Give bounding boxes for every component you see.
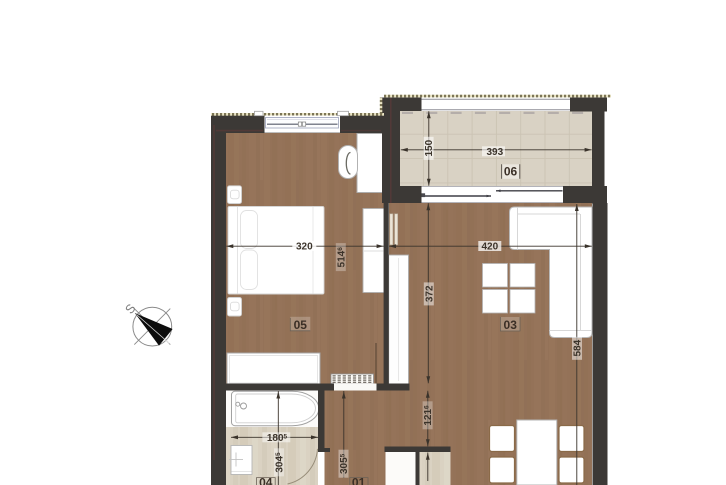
svg-text:05: 05 xyxy=(294,318,308,332)
svg-text:06: 06 xyxy=(504,165,518,179)
svg-text:03: 03 xyxy=(504,318,518,332)
svg-text:150: 150 xyxy=(424,139,435,156)
svg-text:584: 584 xyxy=(573,339,584,356)
svg-text:393: 393 xyxy=(486,147,503,158)
svg-text:04: 04 xyxy=(259,476,273,485)
svg-text:372: 372 xyxy=(424,285,435,302)
svg-text:01: 01 xyxy=(352,476,366,485)
svg-text:320: 320 xyxy=(296,242,313,253)
svg-text:420: 420 xyxy=(481,242,498,253)
